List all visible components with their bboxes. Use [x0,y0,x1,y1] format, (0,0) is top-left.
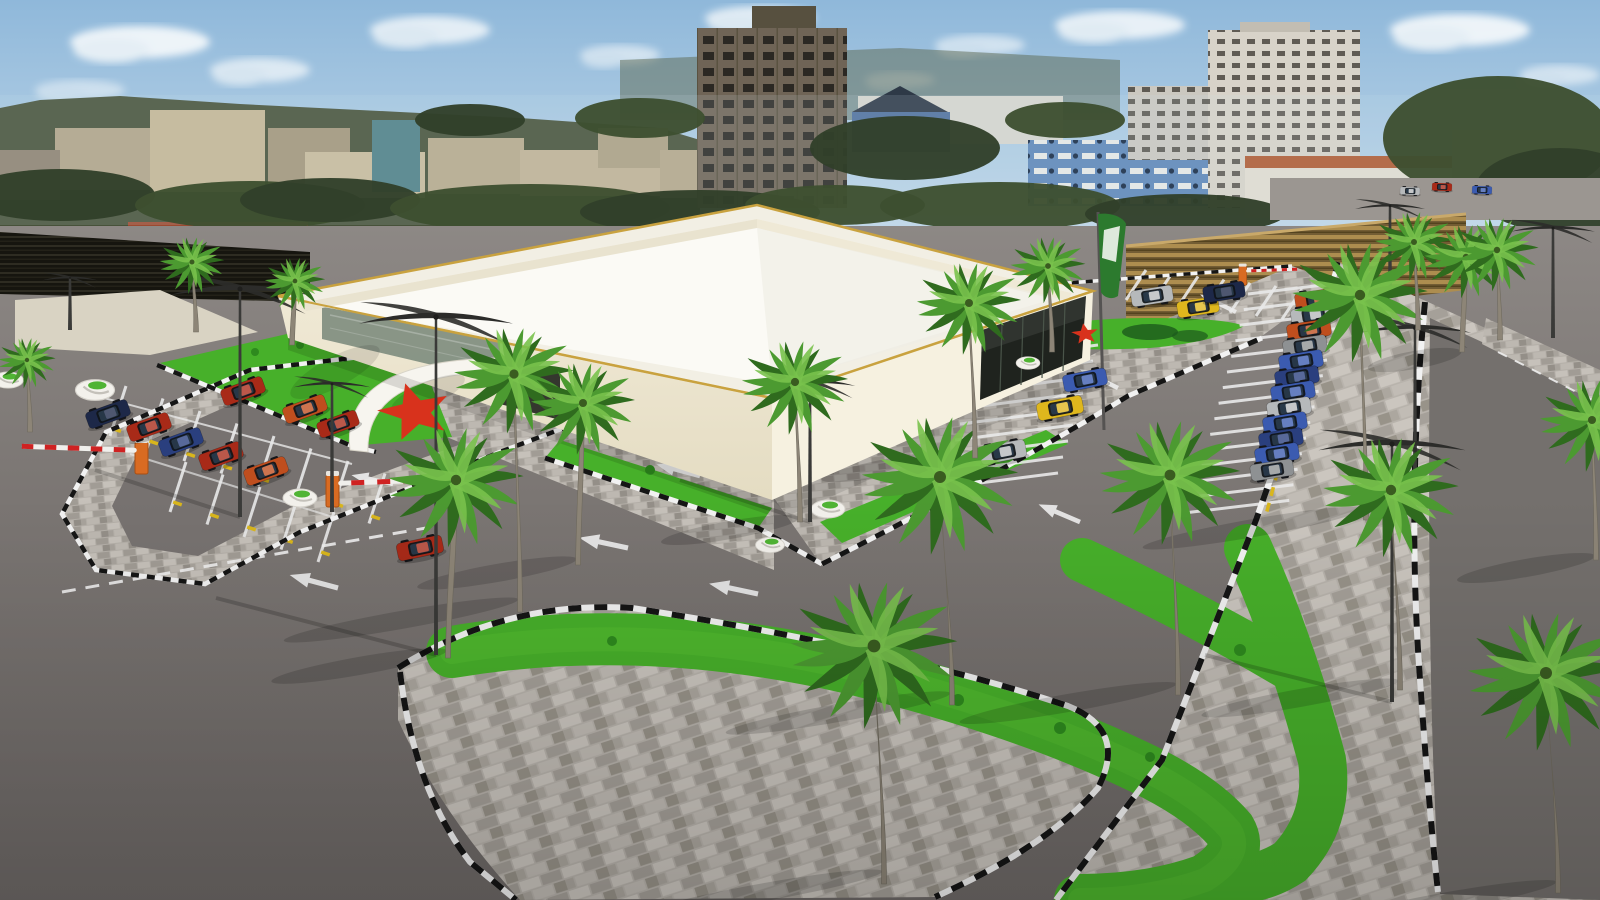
render-canvas [0,0,1600,900]
vignette [0,0,1600,900]
architectural-render [0,0,1600,900]
